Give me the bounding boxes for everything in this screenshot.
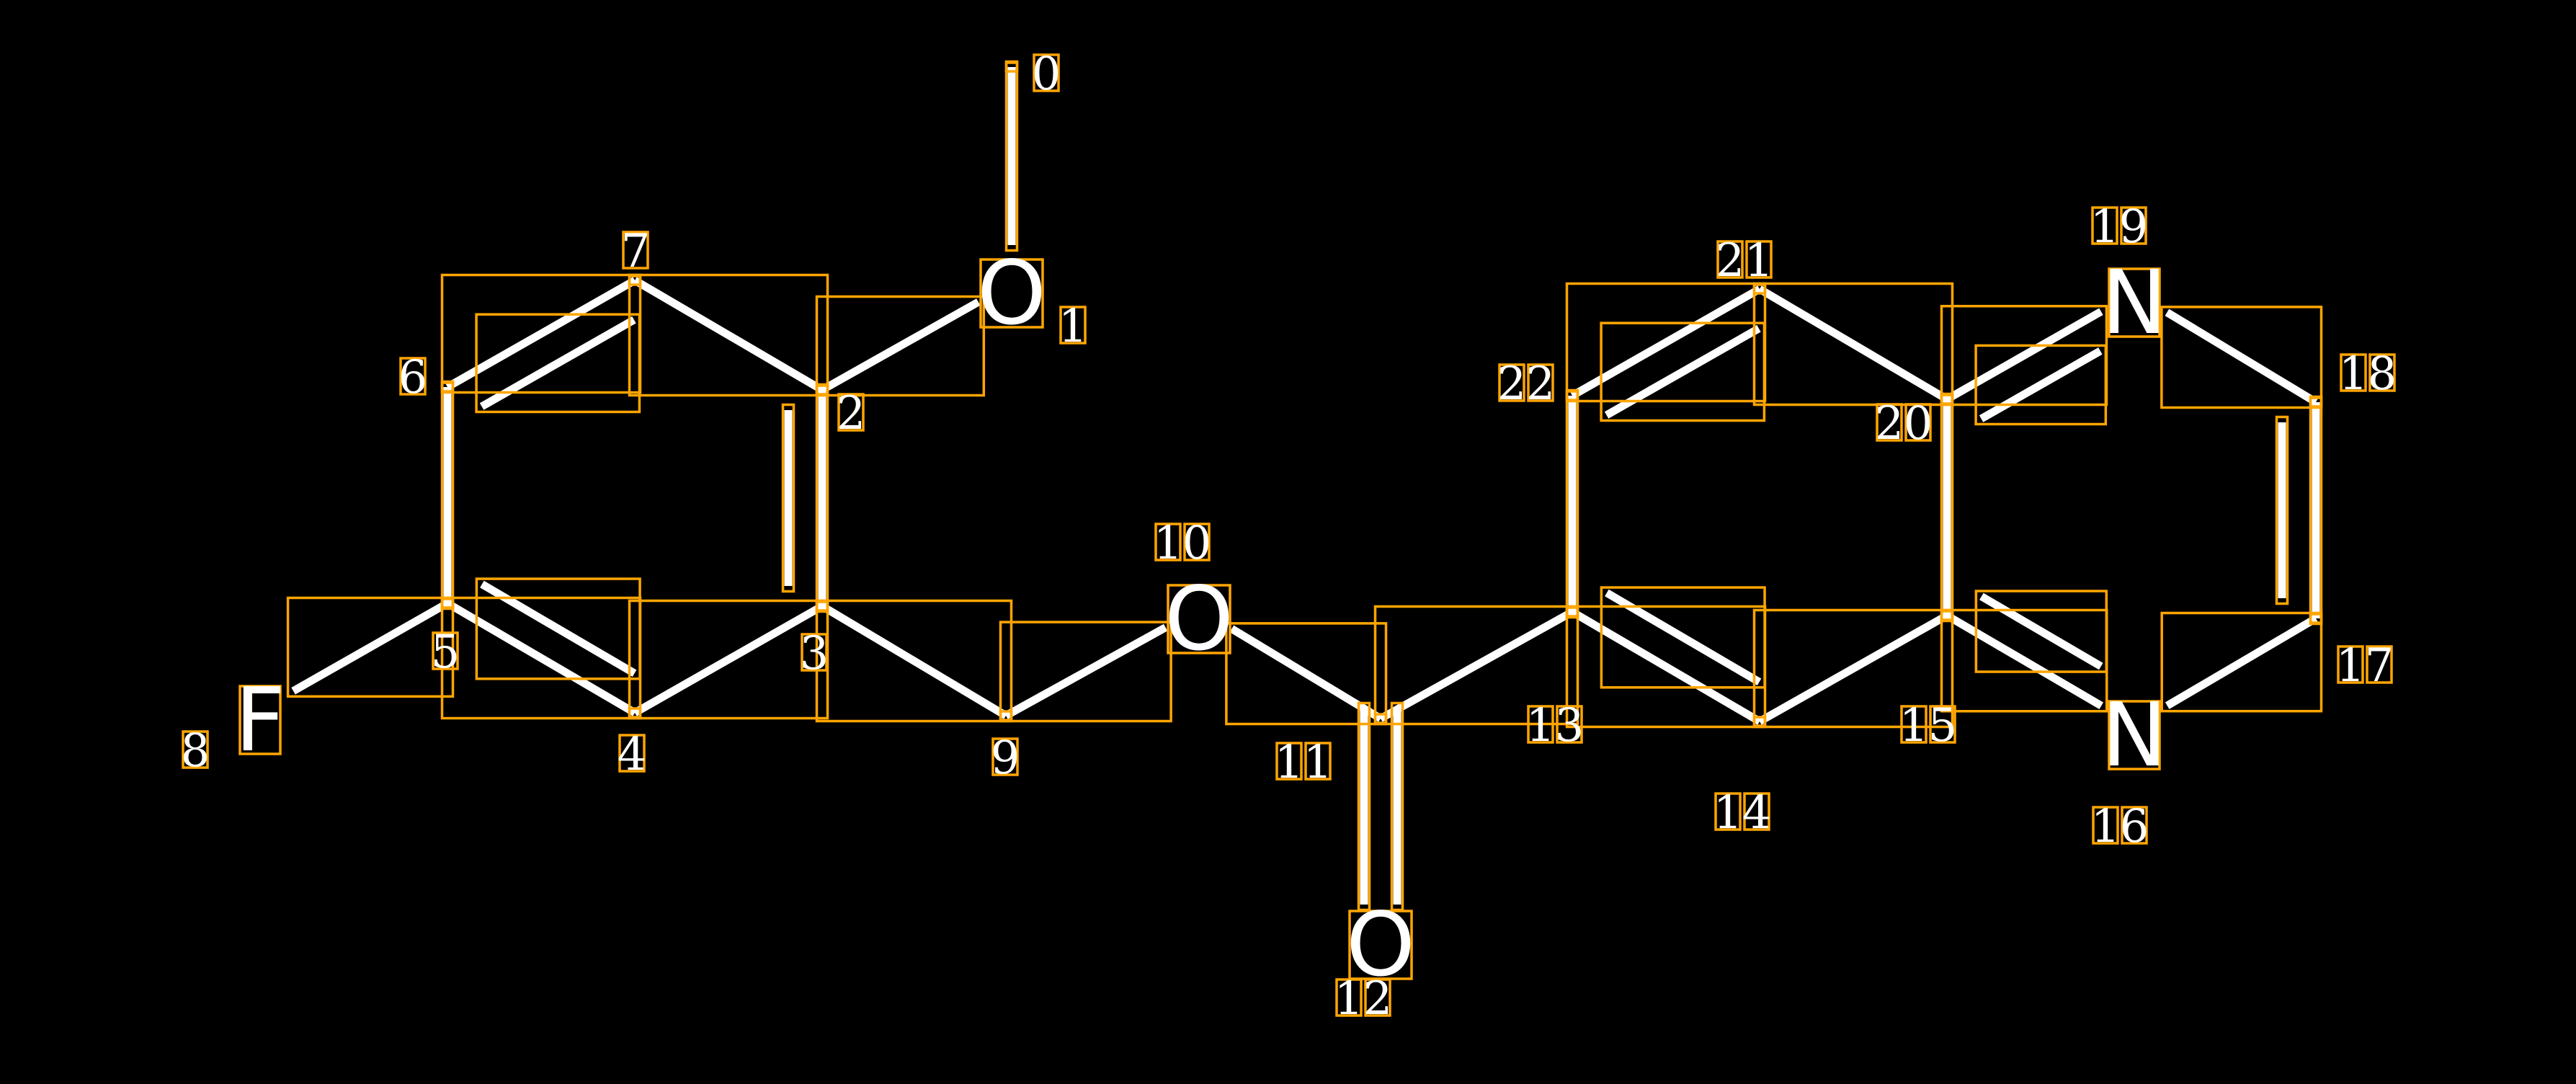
molecule-diagram: OFOONN0123456789101112131415161718192021… (0, 0, 2576, 1084)
index-digit: 1 (1059, 300, 1088, 353)
index-digit: 2 (1716, 234, 1745, 288)
index-digit: 0 (1032, 48, 1061, 101)
atom-symbol-O: O (977, 242, 1046, 345)
index-digit: 1 (1303, 736, 1333, 789)
index-digit: 1 (1334, 972, 1364, 1026)
index-digit: 1 (2336, 639, 2366, 693)
index-digit: 5 (431, 626, 460, 679)
index-digit: 8 (181, 724, 210, 778)
atom-symbol-F: F (235, 669, 285, 771)
index-digit: 9 (991, 732, 1020, 785)
index-digit: 2 (1497, 357, 1527, 411)
index-digit: 1 (1899, 699, 1929, 752)
index-digit: 4 (618, 728, 647, 781)
index-digit: 1 (1275, 736, 1304, 789)
index-digit: 1 (1744, 234, 1774, 288)
index-digit: 2 (1363, 972, 1393, 1026)
index-digit: 6 (2120, 800, 2149, 853)
atom-symbol-N: N (2101, 684, 2167, 786)
index-digit: 1 (2339, 347, 2368, 401)
atom-symbol-O: O (1164, 568, 1234, 670)
index-digit: 1 (2090, 200, 2120, 254)
index-digit: 4 (1742, 786, 1772, 840)
index-digit: 2 (837, 387, 866, 440)
index-digit: 3 (800, 627, 829, 680)
canvas-background (0, 0, 2576, 1084)
index-digit: 0 (1182, 517, 1212, 570)
atom-symbol-N: N (2101, 252, 2167, 354)
index-digit: 1 (1526, 699, 1556, 752)
index-digit: 8 (2368, 347, 2397, 401)
index-digit: 7 (2365, 639, 2394, 693)
index-digit: 2 (1526, 357, 1556, 411)
index-digit: 1 (1713, 786, 1743, 840)
index-digit: 3 (1555, 699, 1585, 752)
index-digit: 9 (2119, 200, 2149, 254)
index-digit: 5 (1928, 699, 1958, 752)
index-digit: 1 (2091, 800, 2121, 853)
index-digit: 6 (398, 351, 428, 404)
index-digit: 0 (1904, 397, 1933, 450)
index-digit: 7 (621, 225, 651, 278)
molecule-screenshot: OFOONN0123456789101112131415161718192021… (0, 0, 2576, 1084)
index-digit: 2 (1875, 397, 1904, 450)
index-digit: 1 (1154, 517, 1183, 570)
